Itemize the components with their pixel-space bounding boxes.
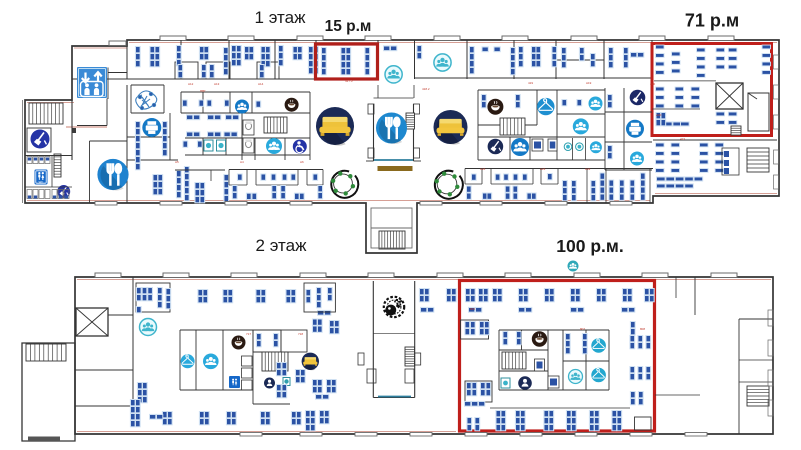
svg-text:А5: А5 (175, 160, 179, 164)
svg-text:WC: WC (39, 180, 44, 184)
svg-text:А6: А6 (300, 160, 304, 164)
svg-text:А19: А19 (586, 81, 592, 85)
svg-text:А24: А24 (480, 167, 486, 171)
svg-text:417.3: 417.3 (345, 79, 353, 83)
svg-text:808: 808 (640, 327, 645, 331)
svg-text:А13: А13 (214, 82, 220, 86)
svg-text:А12: А12 (188, 82, 194, 86)
svg-text:419: 419 (528, 81, 533, 85)
svg-text:418.2: 418.2 (422, 87, 430, 91)
svg-text:2 этаж: 2 этаж (256, 236, 308, 255)
svg-text:420: 420 (650, 82, 655, 86)
svg-text:717: 717 (246, 332, 251, 336)
svg-text:А23: А23 (540, 167, 546, 171)
svg-text:71 р.м: 71 р.м (685, 11, 739, 31)
svg-text:423: 423 (680, 137, 685, 141)
svg-text:100 р.м.: 100 р.м. (556, 236, 623, 256)
svg-text:1 этаж: 1 этаж (255, 8, 307, 27)
svg-text:А4: А4 (240, 160, 244, 164)
svg-text:А20: А20 (656, 113, 662, 117)
svg-text:ПВГ: ПВГ (200, 89, 206, 93)
svg-text:807: 807 (580, 327, 585, 331)
svg-text:718: 718 (298, 332, 303, 336)
svg-text:А22: А22 (585, 167, 591, 171)
svg-text:805: 805 (470, 307, 475, 311)
svg-text:15 р.м: 15 р.м (325, 18, 372, 35)
svg-text:А14: А14 (258, 82, 264, 86)
